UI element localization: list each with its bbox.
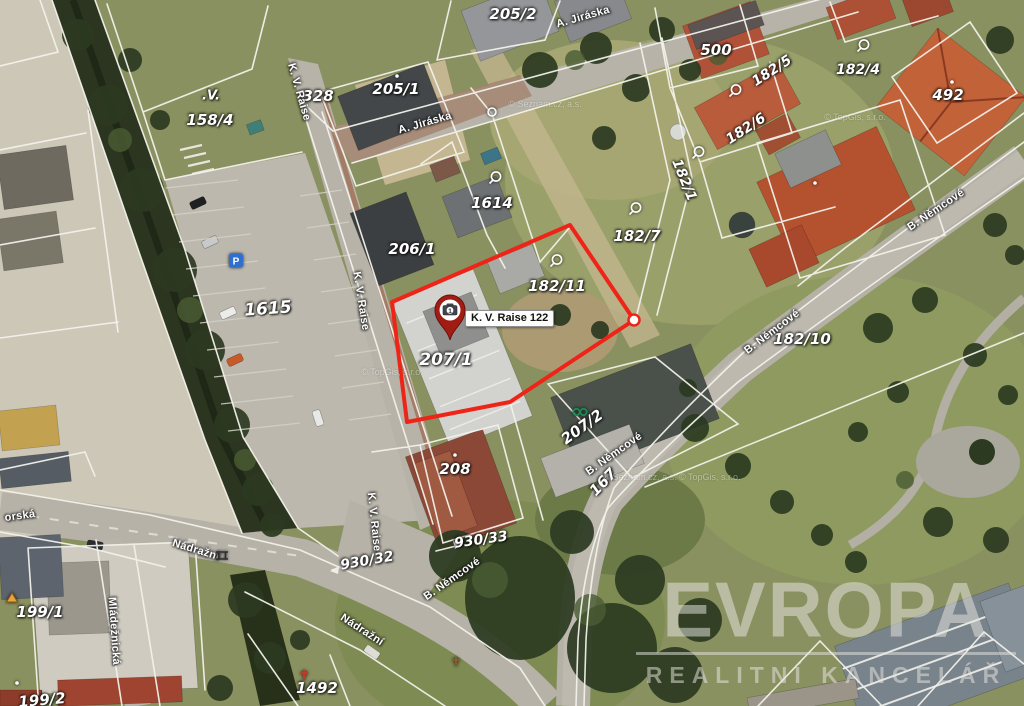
cadastral-aerial-map[interactable]: 205/2205/1500182/5182/4492182/6.V.158/43… [0, 0, 1024, 706]
parcel-vertex-marker [629, 315, 640, 326]
photo-count: 1 [448, 308, 452, 315]
marker-address-label: K. V. Raise 122 [465, 310, 554, 327]
aerial-photo-layer [0, 0, 1024, 706]
